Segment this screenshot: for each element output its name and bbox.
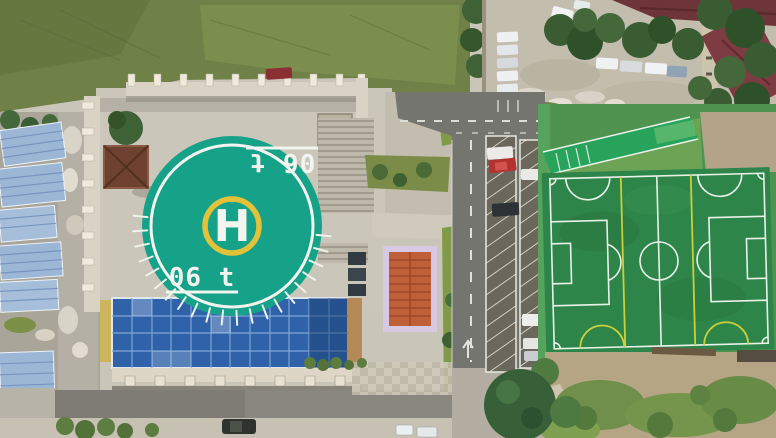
car-roof <box>230 421 242 432</box>
dark-unit <box>348 252 366 265</box>
car <box>266 67 293 80</box>
bush <box>690 385 710 405</box>
hedge <box>344 360 354 370</box>
debris <box>35 329 55 341</box>
east-lawn <box>365 155 450 192</box>
wall-piece <box>737 350 776 362</box>
tree-shade <box>521 407 543 429</box>
tree <box>416 162 432 178</box>
shed <box>0 163 66 207</box>
hedge <box>56 417 74 435</box>
hedge <box>145 423 159 437</box>
hedge <box>357 358 367 368</box>
tree <box>688 76 712 100</box>
weight-marking-top: 06 t <box>246 147 318 177</box>
rubble <box>575 91 605 103</box>
bush <box>647 412 673 438</box>
street-shade <box>55 390 245 420</box>
tree <box>714 56 746 88</box>
car <box>667 65 688 77</box>
glass-highlight <box>132 298 152 316</box>
car-dark <box>492 202 520 217</box>
car <box>487 146 514 160</box>
north-parapet <box>126 82 368 96</box>
shed <box>0 279 59 312</box>
weed-patch <box>4 317 36 333</box>
dirt-corner <box>700 112 776 172</box>
tree <box>550 396 582 428</box>
shed-roof <box>0 279 59 312</box>
tree <box>393 173 407 187</box>
aerial-photo: H 06 t 06 t <box>0 0 776 438</box>
lot-wall <box>482 0 486 94</box>
helipad-letter: H <box>214 201 251 252</box>
car-roof <box>495 161 508 170</box>
car <box>417 427 437 437</box>
tree <box>648 16 676 44</box>
parapet-shade <box>126 96 368 102</box>
debris <box>66 215 84 235</box>
weight-marking-text: 06 t <box>249 147 316 177</box>
football-pitch <box>542 167 775 355</box>
car <box>497 57 518 68</box>
parked-cars-column <box>497 31 518 94</box>
yellow-wall-strip <box>100 300 112 362</box>
bush <box>0 110 20 130</box>
shed <box>0 205 57 242</box>
tree <box>460 28 484 52</box>
tree <box>108 111 126 129</box>
car <box>497 31 518 42</box>
car <box>497 70 518 81</box>
dark-unit <box>348 284 366 296</box>
stairs <box>318 118 374 213</box>
shed <box>0 242 63 280</box>
glass-dark-section <box>309 298 348 368</box>
orange-roof-structure <box>383 246 437 332</box>
hedge <box>97 418 115 436</box>
ground-mottle <box>520 59 600 91</box>
dark-unit <box>348 268 366 281</box>
tree <box>595 13 625 43</box>
parapet-corner <box>356 78 368 124</box>
facade-strip <box>112 368 352 382</box>
car <box>596 57 619 69</box>
weight-marking-bottom: 06 t <box>166 263 238 293</box>
tree <box>372 164 388 180</box>
glass-highlight <box>152 351 191 368</box>
tree <box>672 28 704 60</box>
rooftop-units <box>348 252 366 296</box>
hedge <box>304 357 316 369</box>
tree-highlight <box>496 380 520 404</box>
football-complex <box>538 104 776 366</box>
hedge <box>317 359 329 371</box>
wood-strip <box>348 298 362 368</box>
tree <box>725 8 765 48</box>
car <box>497 44 518 55</box>
debris <box>72 342 88 358</box>
tree-large <box>484 369 556 438</box>
car <box>645 62 668 74</box>
bush <box>713 408 737 432</box>
car <box>396 425 413 435</box>
aerial-scene: H 06 t 06 t <box>0 0 776 438</box>
car <box>620 60 643 72</box>
weight-marking-text: 06 t <box>169 263 236 293</box>
hedge <box>330 357 342 369</box>
tree <box>573 8 597 32</box>
debris <box>58 306 78 334</box>
